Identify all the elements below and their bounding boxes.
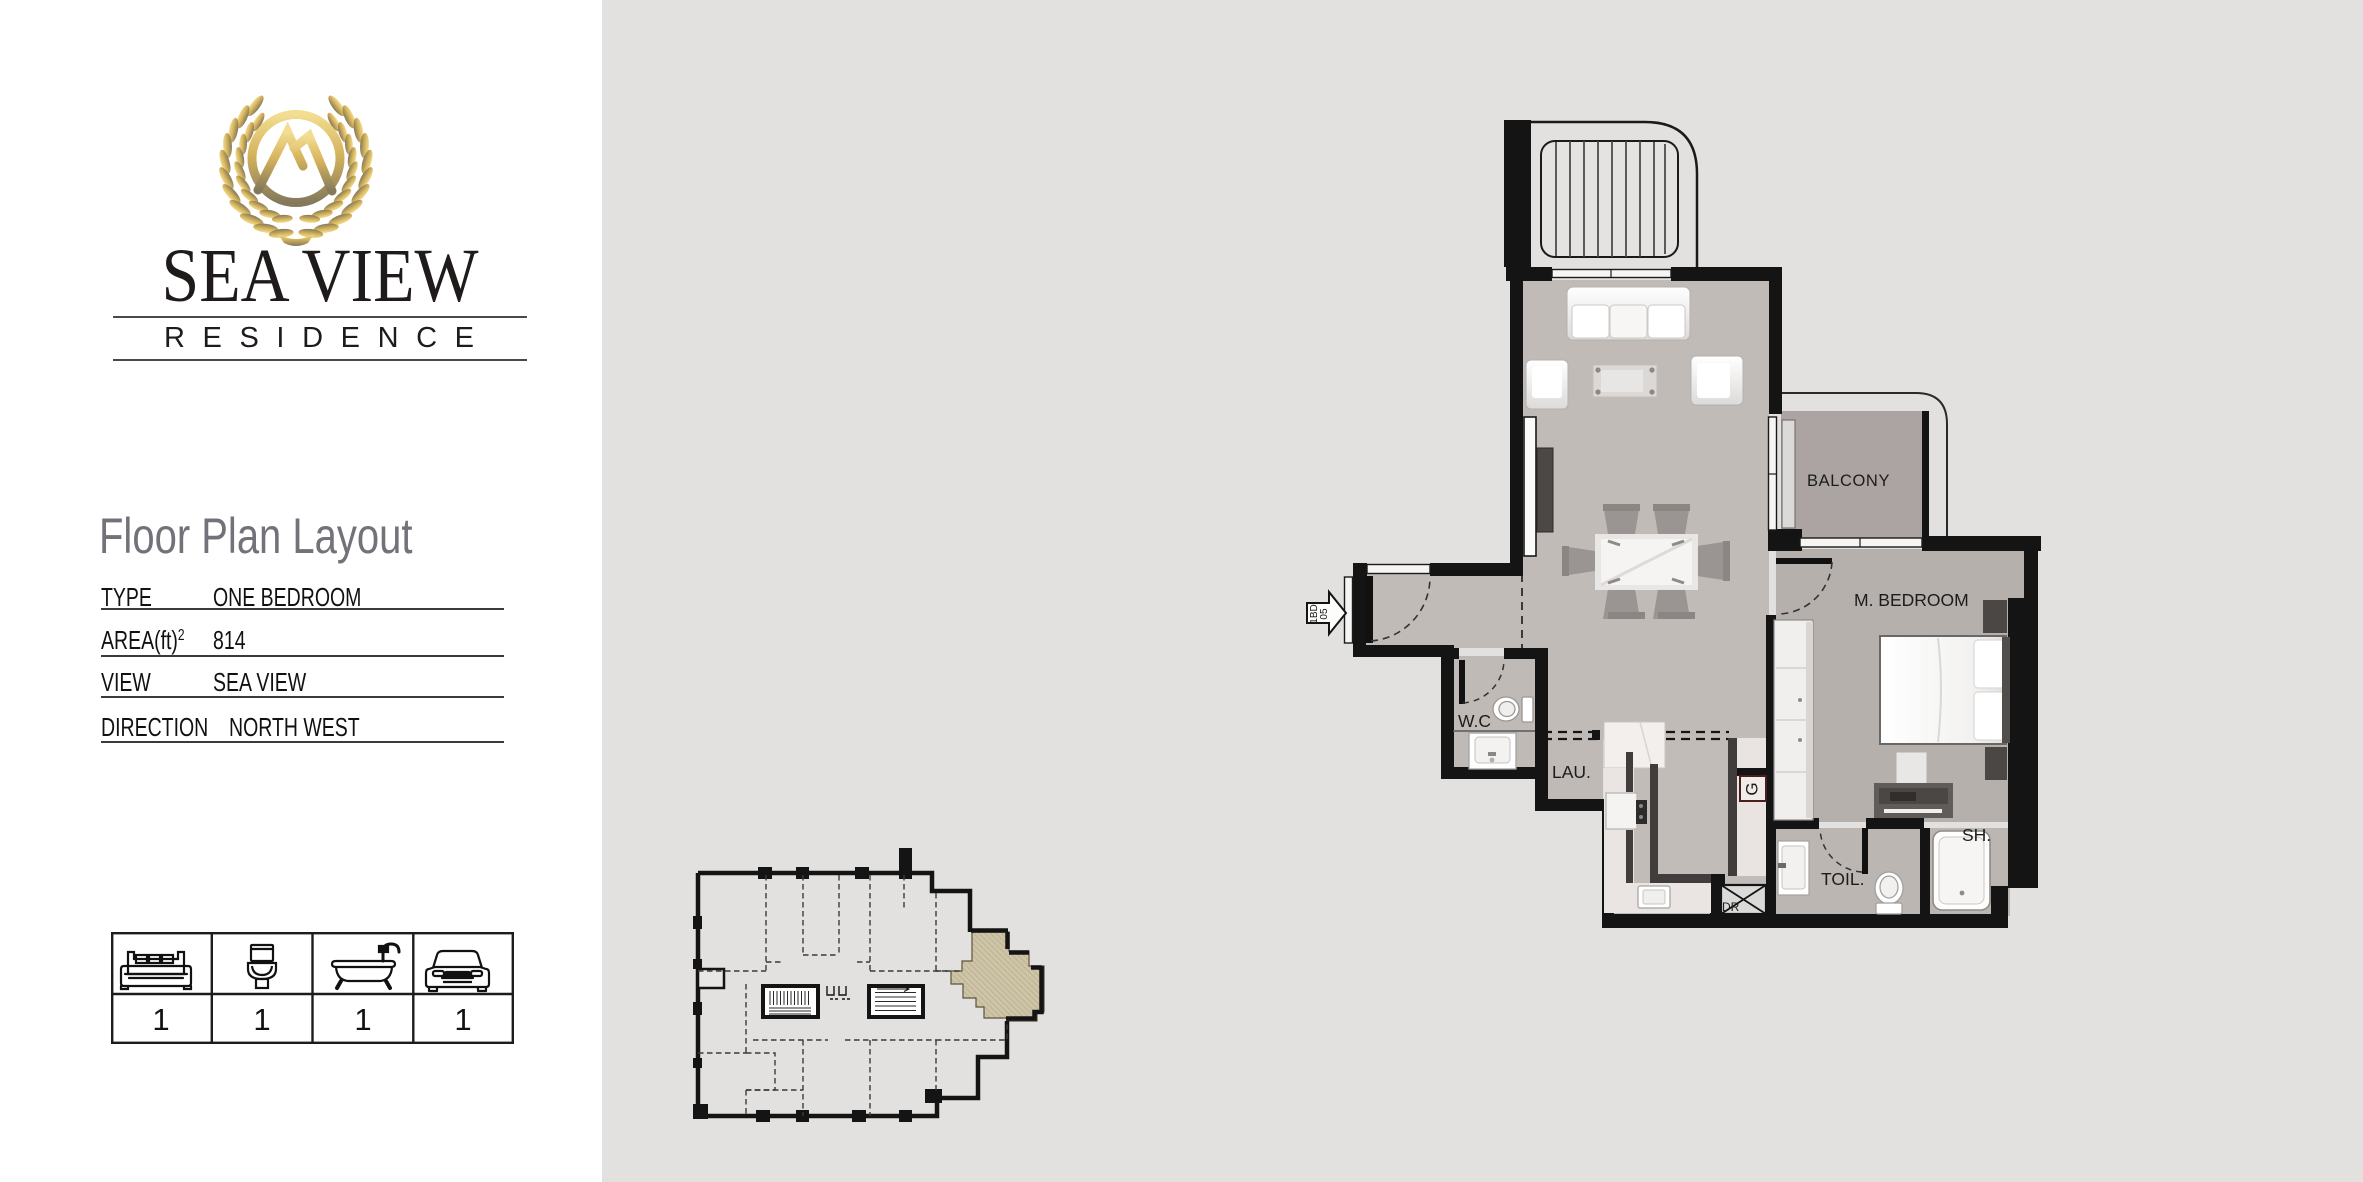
svg-text:05: 05 bbox=[1319, 608, 1330, 620]
svg-text:RESIDENCE: RESIDENCE bbox=[164, 322, 474, 354]
svg-text:DR: DR bbox=[1722, 900, 1740, 914]
svg-text:SH.: SH. bbox=[1962, 825, 1991, 845]
svg-text:1: 1 bbox=[253, 1002, 270, 1037]
svg-text:TOIL.: TOIL. bbox=[1821, 869, 1864, 889]
svg-text:1: 1 bbox=[354, 1002, 371, 1037]
svg-text:M. BEDROOM: M. BEDROOM bbox=[1854, 590, 1969, 610]
svg-text:SEA VIEW: SEA VIEW bbox=[162, 234, 479, 318]
svg-text:G: G bbox=[1742, 782, 1761, 795]
svg-text:BALCONY: BALCONY bbox=[1807, 472, 1890, 490]
svg-text:LAU.: LAU. bbox=[1552, 762, 1591, 782]
svg-text:1: 1 bbox=[152, 1002, 169, 1037]
svg-text:1: 1 bbox=[454, 1002, 471, 1037]
svg-text:W.C: W.C bbox=[1458, 711, 1491, 731]
